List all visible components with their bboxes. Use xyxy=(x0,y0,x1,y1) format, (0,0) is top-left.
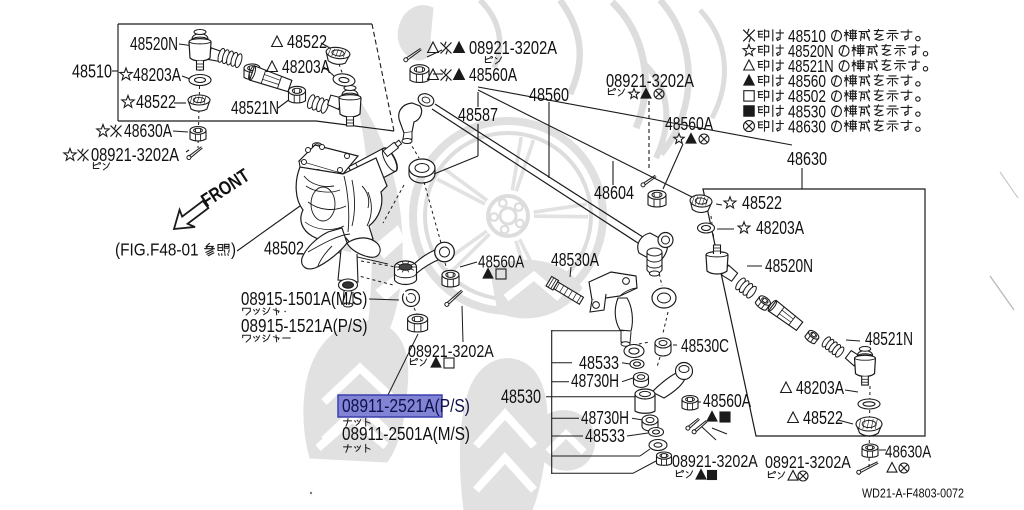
svg-text:08921-3202A: 08921-3202A xyxy=(765,452,851,472)
svg-text:48530A: 48530A xyxy=(551,250,600,270)
svg-text:(FIG.F48-01: (FIG.F48-01 xyxy=(115,240,199,260)
svg-text:48522: 48522 xyxy=(287,32,327,52)
svg-text:08921-3202A: 08921-3202A xyxy=(469,38,558,58)
svg-text:48502: 48502 xyxy=(264,238,304,259)
svg-text:48521N: 48521N xyxy=(231,98,279,118)
svg-text:08921-3202A: 08921-3202A xyxy=(606,71,695,91)
svg-text:): ) xyxy=(231,240,236,260)
svg-text:08921-3202A: 08921-3202A xyxy=(91,145,180,165)
svg-text:48560A: 48560A xyxy=(469,65,518,85)
svg-text:48522: 48522 xyxy=(136,92,176,112)
svg-text:48630A: 48630A xyxy=(124,121,173,141)
svg-text:48630: 48630 xyxy=(787,149,827,169)
svg-text:48520N: 48520N xyxy=(130,34,178,54)
svg-text:48530C: 48530C xyxy=(681,336,729,356)
svg-text:48533: 48533 xyxy=(579,353,619,373)
svg-text:48604: 48604 xyxy=(594,183,634,203)
svg-text:48530: 48530 xyxy=(501,386,541,408)
svg-text:08911-2521A(P/S): 08911-2521A(P/S) xyxy=(342,396,470,416)
svg-text:08921-3202A: 08921-3202A xyxy=(672,451,758,471)
svg-text:48522: 48522 xyxy=(803,408,843,428)
svg-text:48522: 48522 xyxy=(742,193,782,213)
svg-text:48730H: 48730H xyxy=(571,371,619,391)
svg-text:WD21-A-F4803-0072: WD21-A-F4803-0072 xyxy=(862,486,964,501)
svg-text:08915-1521A(P/S): 08915-1521A(P/S) xyxy=(241,316,367,336)
svg-text:48560: 48560 xyxy=(529,85,569,105)
svg-text:48521N: 48521N xyxy=(865,329,913,349)
svg-text:08915-1501A(M/S): 08915-1501A(M/S) xyxy=(241,289,367,309)
svg-text:48630A: 48630A xyxy=(885,442,932,462)
svg-text:48560A: 48560A xyxy=(703,391,752,411)
svg-text:48203A: 48203A xyxy=(796,378,845,398)
svg-text:48203A: 48203A xyxy=(282,57,331,77)
svg-text:48533: 48533 xyxy=(585,426,625,446)
svg-text:48730H: 48730H xyxy=(581,408,629,428)
svg-text:48630: 48630 xyxy=(788,117,826,136)
svg-text:48560A: 48560A xyxy=(665,114,714,134)
svg-text:48520N: 48520N xyxy=(765,256,813,276)
svg-text:08911-2501A(M/S): 08911-2501A(M/S) xyxy=(342,424,470,444)
svg-text:48510: 48510 xyxy=(72,61,112,82)
svg-text:48203A: 48203A xyxy=(756,218,805,238)
svg-text:48203A: 48203A xyxy=(133,65,182,85)
svg-text:48587: 48587 xyxy=(458,105,498,125)
